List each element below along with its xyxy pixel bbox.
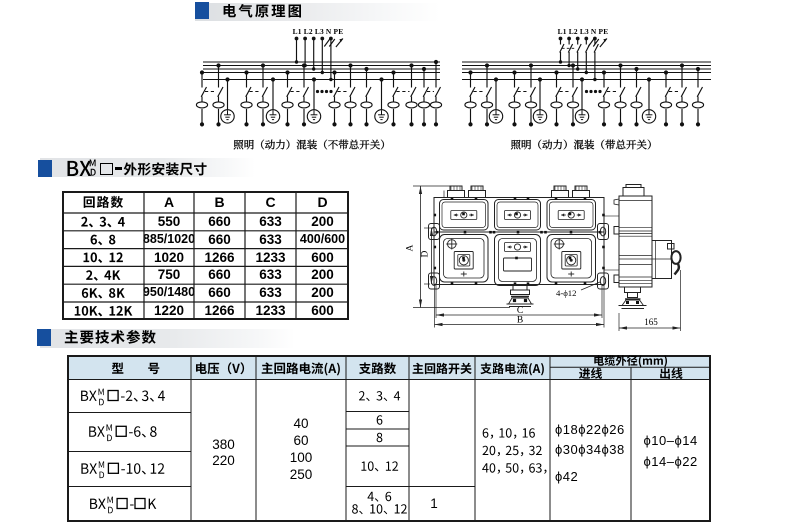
svg-text:C: C	[517, 306, 523, 316]
svg-text:4-ϕ12: 4-ϕ12	[556, 288, 577, 298]
svg-text:L1 L2 L3 N PE: L1 L2 L3 N PE	[293, 27, 344, 36]
svg-text:A: A	[406, 244, 416, 251]
svg-text:B: B	[517, 315, 523, 325]
svg-text:L1 L2 L3 N PE: L1 L2 L3 N PE	[558, 27, 609, 36]
svg-text:165: 165	[644, 317, 658, 327]
svg-text:D: D	[421, 250, 431, 257]
